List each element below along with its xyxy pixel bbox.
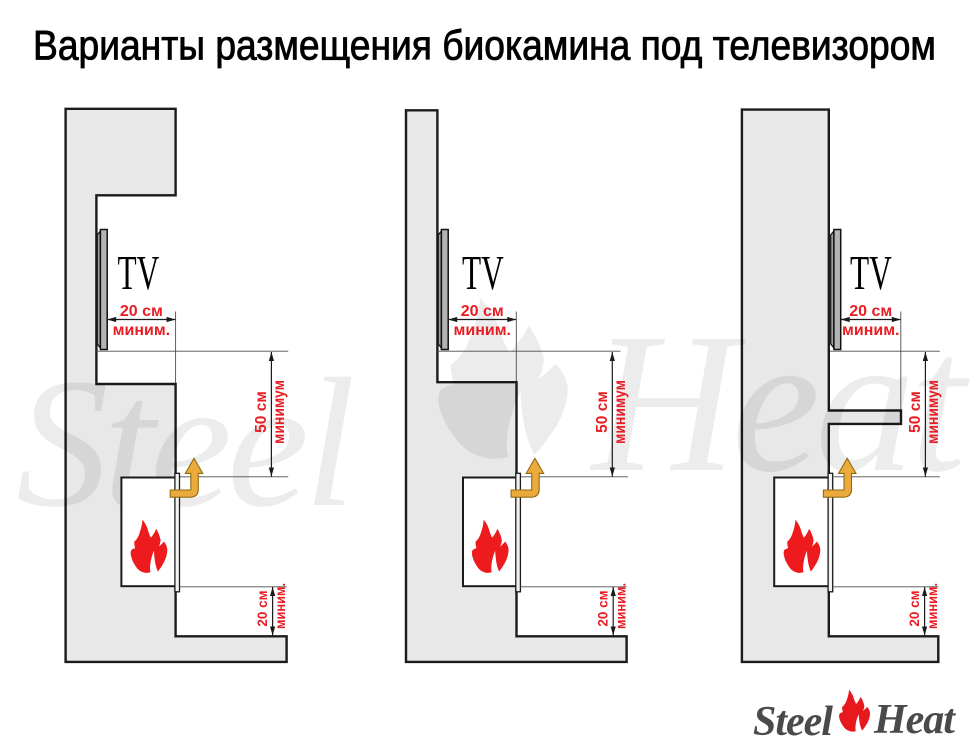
svg-text:минимум: минимум	[925, 380, 942, 444]
svg-text:20 см: 20 см	[255, 590, 270, 626]
svg-text:50 см: 50 см	[907, 391, 924, 433]
svg-text:миним.: миним.	[924, 583, 939, 629]
svg-text:20 см: 20 см	[596, 590, 611, 626]
svg-text:Steel: Steel	[16, 341, 352, 546]
svg-text:миним.: миним.	[842, 322, 899, 339]
svg-text:минимум: минимум	[271, 380, 288, 444]
svg-text:TV: TV	[462, 245, 504, 300]
svg-text:миним.: миним.	[113, 322, 170, 339]
svg-text:20 см: 20 см	[907, 590, 922, 626]
svg-text:50 см: 50 см	[253, 391, 270, 433]
svg-text:минимум: минимум	[612, 380, 629, 444]
svg-text:20 см: 20 см	[461, 303, 504, 320]
svg-text:Варианты размещения биокамина: Варианты размещения биокамина под телеви…	[33, 23, 936, 69]
svg-text:миним.: миним.	[272, 583, 287, 629]
svg-text:20 см: 20 см	[120, 303, 163, 320]
svg-text:TV: TV	[850, 245, 892, 300]
svg-text:миним.: миним.	[613, 583, 628, 629]
svg-text:20 см: 20 см	[849, 303, 892, 320]
svg-text:Heat: Heat	[873, 697, 956, 743]
svg-text:миним.: миним.	[454, 322, 511, 339]
svg-text:Steel: Steel	[753, 699, 833, 745]
svg-text:TV: TV	[118, 245, 160, 300]
svg-text:50 см: 50 см	[594, 391, 611, 433]
